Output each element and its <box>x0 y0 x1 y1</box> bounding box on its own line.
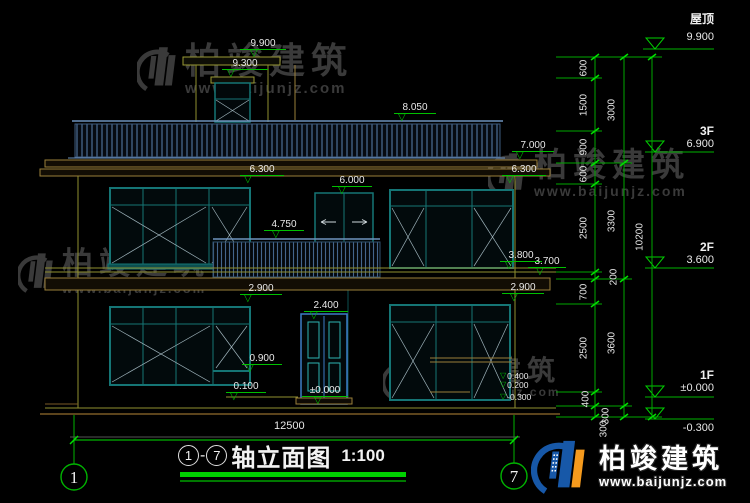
dim-chain-label: 2500 <box>579 217 590 239</box>
dim-chain-label: 3000 <box>607 99 618 121</box>
level-name-roof: 屋顶 <box>640 10 714 27</box>
axis-bubble-7: 7 <box>506 467 522 487</box>
elevation-linework <box>0 0 750 503</box>
spot-elevation: 6.300▽ <box>240 164 284 183</box>
spot-elevation: 9.300▽ <box>222 58 268 77</box>
level-value-3f: 6.900 <box>640 138 714 150</box>
title-text: 轴立面图 <box>231 438 331 473</box>
dim-chain-label: 3300 <box>607 210 618 232</box>
level-value-ground: -0.300 <box>640 422 714 434</box>
dim-chain-label: 3600 <box>607 332 618 354</box>
brand-url: www.baijunjz.com <box>599 474 727 489</box>
dim-chain-label: 200 <box>609 269 620 286</box>
title-scale: 1:100 <box>341 446 384 466</box>
level-name-3f: 3F <box>640 124 714 138</box>
level-name-1f: 1F <box>640 368 714 382</box>
spot-elevation: 7.000▽ <box>512 140 554 159</box>
storey-level-lines <box>643 38 714 419</box>
dim-chain-label: 400 <box>581 391 592 408</box>
axis-bubble-1: 1 <box>66 468 82 488</box>
cad-elevation-drawing: 柏竣建筑 www.baijunjz.com 柏竣建筑 www.baijunjz.… <box>0 0 750 503</box>
spot-elevation: 2.400▽ <box>304 300 348 319</box>
dim-chain-label: 600 <box>579 165 590 182</box>
dim-chain-label: 900 <box>579 139 590 156</box>
spot-elevation: 8.050▽ <box>394 102 436 121</box>
overall-dimension: 12500 <box>270 420 309 432</box>
spot-elevation: 6.300▽ <box>502 164 546 183</box>
baijun-logo-color-icon <box>531 437 593 497</box>
title-axis-to: 7 <box>206 445 227 466</box>
spot-elevation: 2.900▽ <box>240 283 282 302</box>
brand-name: 柏竣建筑 <box>599 445 727 475</box>
dim-chain-label: 600 <box>579 59 590 76</box>
dim-chain-label: 10200 <box>635 223 646 251</box>
spot-elevation: ▽-0.300 <box>500 393 531 402</box>
dim-chain-label: 2500 <box>579 337 590 359</box>
dim-chain-label: 700 <box>579 283 590 300</box>
spot-elevation: 6.000▽ <box>332 175 372 194</box>
level-value-2f: 3.600 <box>640 254 714 266</box>
spot-elevation: 0.900▽ <box>242 353 282 372</box>
level-name-2f: 2F <box>640 240 714 254</box>
spot-elevation: 0.100▽ <box>226 381 266 400</box>
drawing-title: 1 - 7 轴立面图 1:100 <box>178 438 385 473</box>
spot-elevation: 4.750▽ <box>264 219 304 238</box>
level-value-roof: 9.900 <box>640 31 714 43</box>
title-dash: - <box>200 447 205 465</box>
brand-logo-color: 柏竣建筑 www.baijunjz.com <box>531 437 727 497</box>
title-underline <box>180 472 406 482</box>
spot-elevation: 2.900▽ <box>502 282 544 301</box>
balcony-railing <box>213 239 380 277</box>
spot-elevation: ▽0.200 <box>500 381 528 390</box>
level-value-1f: ±0.000 <box>640 382 714 394</box>
spot-elevation: ±0.000▽ <box>302 385 348 404</box>
dim-chain-label: 1500 <box>579 93 590 115</box>
main-roof <box>40 121 550 176</box>
title-axis-from: 1 <box>178 445 199 466</box>
spot-elevation: 3.700▽ <box>528 256 566 275</box>
spot-elevation: 9.900▽ <box>240 38 286 57</box>
dim-chain-label: 300 <box>599 421 610 438</box>
